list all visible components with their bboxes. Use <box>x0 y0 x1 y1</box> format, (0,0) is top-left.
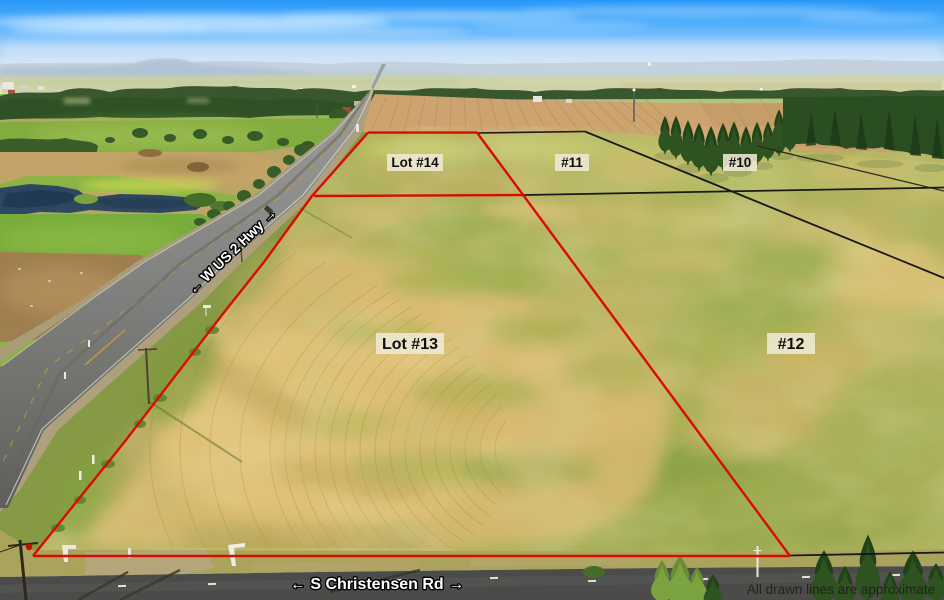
svg-text:Lot #13: Lot #13 <box>382 336 438 353</box>
svg-text:← S Christensen Rd →: ← S Christensen Rd → <box>290 576 464 593</box>
svg-text:#10: #10 <box>729 155 752 170</box>
svg-text:#11: #11 <box>561 155 583 170</box>
svg-text:Lot #14: Lot #14 <box>391 155 439 170</box>
svg-text:#12: #12 <box>778 336 805 353</box>
svg-text:All drawn lines are approximat: All drawn lines are approximate <box>747 582 935 597</box>
